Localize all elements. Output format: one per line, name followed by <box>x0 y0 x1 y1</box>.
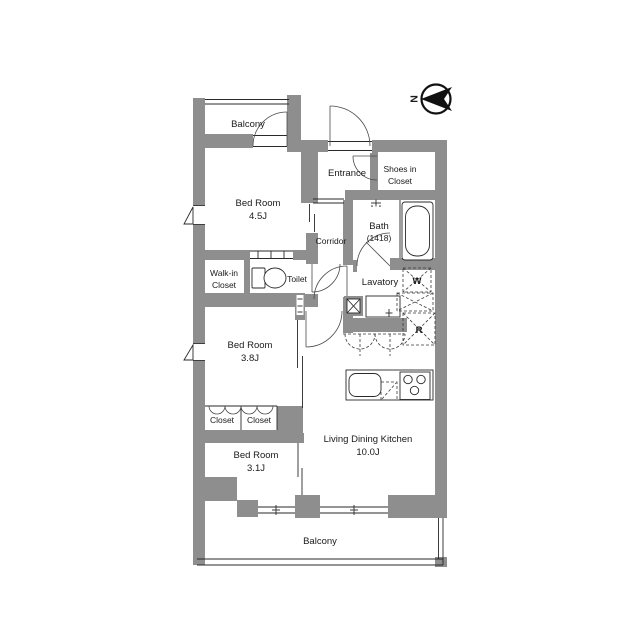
label-ldk-size: 10.0J <box>356 447 379 458</box>
label-bedroom38-size: 3.8J <box>241 353 259 364</box>
ldk-door <box>306 311 342 347</box>
wall-slide2-top-stub <box>296 433 304 443</box>
north-arrow: N <box>409 85 453 114</box>
label-bedroom45-size: 4.5J <box>249 211 267 222</box>
washbasin-icon <box>366 296 400 317</box>
label-ldk-name: Living Dining Kitchen <box>324 434 413 445</box>
wall-bedroom3-step1 <box>205 477 237 501</box>
floor-plan-canvas: N Balcony Bed Room 4.5J Entrance Shoes i… <box>0 0 640 640</box>
wall-corridor-right-upper <box>343 200 353 265</box>
label-bath-name: Bath <box>369 221 389 232</box>
label-bedroom31-size: 3.1J <box>247 463 265 474</box>
wall-balcony-corner <box>435 557 447 567</box>
label-sic-1: Shoes in <box>383 164 416 174</box>
north-label: N <box>409 95 421 103</box>
wall-bottom-pillar <box>295 495 320 518</box>
wall-closet-bottom <box>205 430 303 443</box>
label-bedroom38-name: Bed Room <box>228 340 273 351</box>
label-sic-2: Closet <box>388 176 413 186</box>
pipe-shaft-icon <box>344 296 363 316</box>
label-closet-right: Closet <box>247 415 272 425</box>
toilet-icon <box>252 268 286 288</box>
window-icon <box>184 207 193 224</box>
kitchen-counter <box>346 370 433 400</box>
label-washer: W <box>413 276 422 287</box>
floor-plan-page: N Balcony Bed Room 4.5J Entrance Shoes i… <box>0 0 640 640</box>
label-balcony-top: Balcony <box>231 119 265 130</box>
wall-lavatory-bottom <box>343 318 407 332</box>
label-corridor: Corridor <box>316 236 347 246</box>
kitchen-cabinets <box>343 334 405 356</box>
wall-balcony-bedroom <box>205 134 253 148</box>
wall-bedroom3-step2 <box>237 500 258 517</box>
wall-bath-top <box>345 190 447 200</box>
label-balcony-bottom: Balcony <box>303 536 337 547</box>
shower-icon <box>371 200 381 207</box>
north-arrow-icon <box>421 87 452 111</box>
kitchen-sink-icon <box>349 374 381 397</box>
wall-bottom-right-block <box>388 495 447 518</box>
wall-left-outer <box>193 98 205 565</box>
wall-top-right <box>301 140 447 152</box>
label-lavatory: Lavatory <box>362 277 399 288</box>
storage-niche <box>397 293 433 311</box>
label-refrigerator: R <box>416 325 423 336</box>
wall-sic-left <box>370 152 378 194</box>
label-wic-2: Closet <box>212 280 237 290</box>
bathtub-icon <box>406 206 430 256</box>
label-wic-1: Walk-in <box>210 268 238 278</box>
label-entrance: Entrance <box>328 168 366 179</box>
fixtures <box>205 200 435 431</box>
wall-top-pillar <box>287 95 301 152</box>
label-closet-left: Closet <box>210 415 235 425</box>
label-toilet: Toilet <box>287 274 307 284</box>
window-icon <box>184 345 193 360</box>
label-bedroom45-name: Bed Room <box>236 198 281 209</box>
label-bath-size: (1418) <box>367 233 392 243</box>
wall-wic-toilet-divider <box>244 255 250 295</box>
stove-icon <box>400 372 430 400</box>
label-bedroom31-name: Bed Room <box>234 450 279 461</box>
